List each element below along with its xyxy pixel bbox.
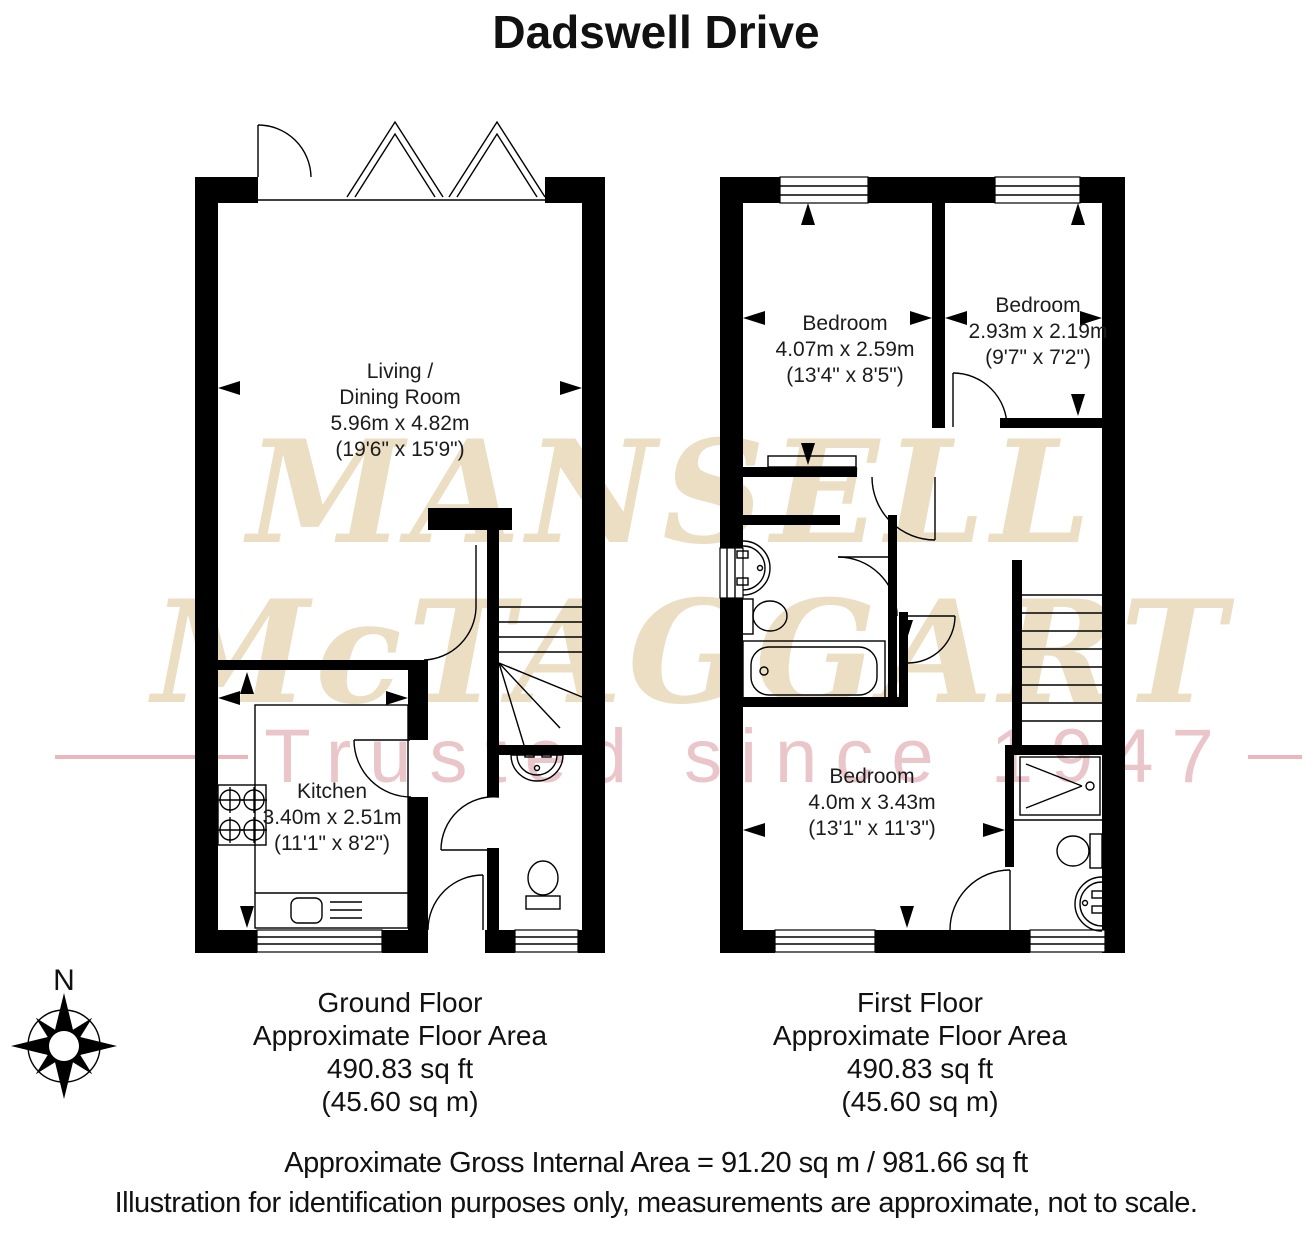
room-imperial-size: (13'1" x 11'3") xyxy=(808,817,936,840)
caption-floor-name: Ground Floor xyxy=(318,987,483,1018)
toilet-icon xyxy=(526,861,560,909)
room-name: Bedroom xyxy=(802,312,887,335)
window xyxy=(515,930,578,952)
room-imperial-size: (19'6" x 15'9") xyxy=(335,438,464,461)
room-metric-size: 3.40m x 2.51m xyxy=(263,806,402,829)
window xyxy=(720,548,743,598)
caption-area-sqft: 490.83 sq ft xyxy=(327,1053,474,1084)
room-metric-size: 4.0m x 3.43m xyxy=(808,791,935,814)
footer-gross-area: Approximate Gross Internal Area = 91.20 … xyxy=(284,1147,1028,1179)
room-imperial-size: (9'7" x 7'2") xyxy=(985,346,1091,369)
compass-north-label: N xyxy=(53,964,75,997)
floorplan-page: MANSELL McTAGGART Trusted since 1947 Dad… xyxy=(0,0,1312,1235)
room-imperial-size: (13'4" x 8'5") xyxy=(786,364,903,387)
bifold-doors xyxy=(347,122,545,197)
window xyxy=(257,930,382,952)
kitchen-sink-icon xyxy=(291,898,322,923)
caption-area-sqm: (45.60 sq m) xyxy=(841,1086,998,1117)
ground-floor-caption: Ground Floor Approximate Floor Area 490.… xyxy=(253,987,548,1117)
caption-area-label: Approximate Floor Area xyxy=(253,1020,548,1051)
shower-room-door-arc xyxy=(950,870,1010,930)
room-metric-size: 5.96m x 4.82m xyxy=(331,412,470,435)
bedroom-left-label: Bedroom 4.07m x 2.59m (13'4" x 8'5") xyxy=(776,312,915,387)
room-name: Living / xyxy=(367,360,434,383)
bedroom-right-label: Bedroom 2.93m x 2.19m (9'7" x 7'2") xyxy=(969,294,1108,369)
room-imperial-size: (11'1" x 8'2") xyxy=(274,832,390,855)
front-door-arc xyxy=(428,875,483,930)
window xyxy=(995,177,1080,203)
room-name: Bedroom xyxy=(829,765,914,788)
caption-area-label: Approximate Floor Area xyxy=(773,1020,1068,1051)
caption-area-sqft: 490.83 sq ft xyxy=(847,1053,994,1084)
room-name: Kitchen xyxy=(297,780,367,803)
caption-floor-name: First Floor xyxy=(857,987,983,1018)
wc-door-arc xyxy=(441,797,499,850)
toilet-icon xyxy=(1057,834,1102,868)
room-metric-size: 4.07m x 2.59m xyxy=(776,338,915,361)
footer-disclaimer: Illustration for identification purposes… xyxy=(115,1187,1198,1219)
room-name: Dining Room xyxy=(339,386,460,409)
hob-icon xyxy=(217,785,267,845)
compass-rose-icon: N xyxy=(11,964,117,1099)
window xyxy=(775,930,875,952)
room-name: Bedroom xyxy=(995,294,1080,317)
caption-area-sqm: (45.60 sq m) xyxy=(321,1086,478,1117)
first-floor-caption: First Floor Approximate Floor Area 490.8… xyxy=(773,987,1068,1117)
floorplan-drawing: MANSELL McTAGGART Trusted since 1947 Dad… xyxy=(0,0,1312,1235)
entrance-door-arc xyxy=(258,125,311,177)
window xyxy=(780,177,868,203)
basin-icon xyxy=(1075,877,1104,931)
room-metric-size: 2.93m x 2.19m xyxy=(969,320,1108,343)
page-title: Dadswell Drive xyxy=(492,6,819,58)
window xyxy=(1030,930,1105,952)
footer: Approximate Gross Internal Area = 91.20 … xyxy=(115,1147,1198,1219)
